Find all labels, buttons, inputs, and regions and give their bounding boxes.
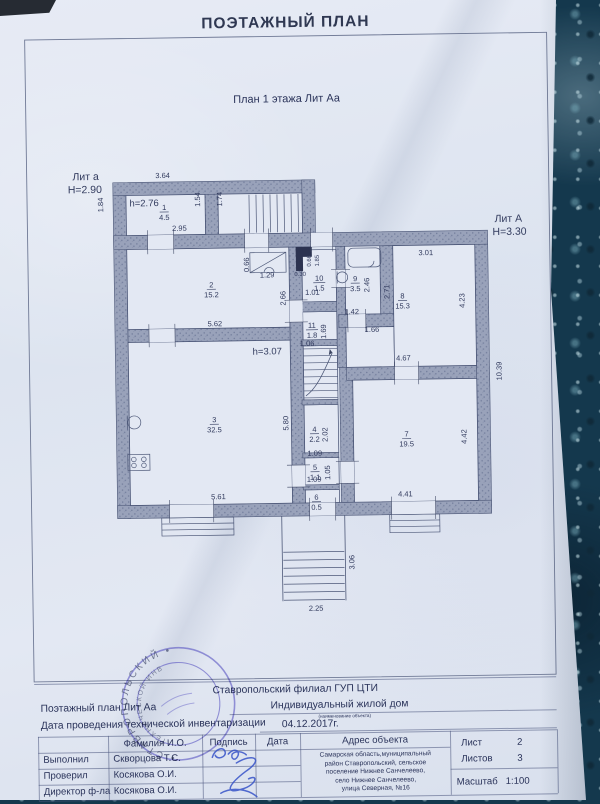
chimney-block: [296, 247, 303, 271]
dim-label: 2.25: [309, 604, 324, 613]
dim-label: 4.67: [396, 353, 411, 362]
washbasin-icon: [337, 272, 348, 283]
bath-icon: [348, 248, 381, 267]
dim-label: Лит а: [72, 171, 99, 183]
room-number: 5: [313, 463, 317, 472]
photo-of-floor-plan-document: { "title": "ПОЭТАЖНЫЙ ПЛАН", "subtitle":…: [0, 0, 600, 800]
room-area: 0.5: [311, 503, 322, 512]
dim-label: 1.42: [344, 307, 359, 316]
sheets-label: Листов: [461, 753, 492, 764]
room-area: 3.5: [350, 284, 361, 293]
entry-steps: [162, 514, 440, 536]
room-number: 7: [404, 429, 408, 438]
dim-label: 0.66: [307, 254, 313, 266]
dim-label: 1.85: [315, 254, 321, 266]
room-number: 6: [314, 493, 318, 502]
inner-walls: [296, 246, 340, 490]
dim-label: 1.09: [307, 475, 322, 484]
dim-label: Н=3.30: [492, 226, 526, 239]
room-area: 4.5: [159, 213, 170, 222]
dim-label: h=3.07: [253, 346, 282, 357]
row-role: Проверил: [43, 770, 87, 782]
dim-label: 2.02: [320, 427, 329, 442]
porch-stair: [249, 194, 299, 233]
col-header-address: Адрес объекта: [300, 734, 450, 747]
room-number: 9: [353, 274, 357, 283]
sheet-label: Лист: [461, 737, 482, 748]
sheets-value: 3: [517, 753, 523, 764]
dim-label: 1.69: [319, 324, 328, 339]
scale-value: 1:100: [506, 776, 530, 787]
dim-label: 3.01: [418, 248, 433, 257]
interior-stair: [303, 348, 338, 397]
room-area: 15.3: [395, 301, 410, 310]
dim-label: 4.23: [457, 293, 466, 308]
dim-label: 1.05: [323, 465, 332, 480]
inventory-date-value: 04.12.2017г.: [282, 718, 339, 730]
room-number: 3: [212, 415, 216, 424]
document-content: ПОЭТАЖНЫЙ ПЛАН План 1 этажа Лит Аа: [0, 0, 600, 804]
dim-label: 5.61: [211, 492, 226, 501]
room-area: 2.2: [309, 435, 320, 444]
room-number: 4: [312, 425, 316, 434]
dim-label: 1.66: [365, 325, 380, 334]
scale-label: Масштаб: [457, 776, 498, 788]
page-title: ПОЭТАЖНЫЙ ПЛАН: [24, 10, 546, 36]
dim-label: 4.42: [459, 429, 468, 444]
row-role: Директор ф-ла: [44, 786, 111, 798]
dim-label: 1.84: [96, 198, 105, 213]
dim-label: 10.39: [494, 362, 503, 381]
dim-label: 1.06: [300, 339, 315, 348]
room-area: 32.5: [207, 425, 222, 434]
sheet-value: 2: [517, 737, 523, 748]
dim-label: 5.62: [207, 319, 222, 328]
dim-label: 1.09: [307, 449, 322, 458]
plan-subtitle: План 1 этажа Лит Аа: [25, 89, 547, 109]
room-number: 11: [308, 321, 316, 330]
room-area: 1.1: [310, 473, 321, 482]
dim-label: 0.30: [294, 272, 306, 278]
object-type: Индивидуальный жилой дом: [234, 698, 444, 712]
dim-label: 2.66: [278, 291, 287, 306]
dim-label: Лит А: [494, 213, 522, 225]
room-number: 1: [162, 203, 166, 212]
walls: [113, 177, 492, 519]
drawing-frame: [25, 32, 556, 682]
row-role: Выполнил: [43, 754, 89, 766]
dim-label: 3.06: [347, 555, 356, 570]
outside-stair: [282, 515, 346, 601]
sink-icon: [128, 416, 141, 429]
dim-label: h=2.76: [129, 198, 158, 209]
dim-label: 1.29: [260, 270, 275, 279]
plan-labels: Лит аН=2.903.641.84h=2.762.951.541.74Лит…: [68, 165, 533, 617]
dim-label: 4.41: [398, 489, 413, 498]
dim-label: Н=2.90: [68, 184, 102, 197]
room-number: 10: [315, 274, 323, 283]
dim-label: 2.71: [382, 284, 391, 299]
rooms: [126, 190, 479, 505]
cupboard-icon: [250, 252, 286, 273]
room-area: 15.2: [204, 290, 219, 299]
dim-label: 2.95: [172, 224, 187, 233]
stove-icon: [128, 454, 150, 470]
dim-label: 5.80: [281, 416, 290, 431]
dim-label: 1.74: [215, 192, 224, 207]
room-area: 1.8: [307, 331, 318, 340]
fixtures: [125, 248, 384, 471]
chimney-block: [296, 247, 312, 257]
room-number: 8: [400, 291, 404, 300]
dim-label: 3.64: [155, 171, 170, 180]
room-number: 2: [209, 280, 213, 289]
wall-openings: [147, 226, 435, 523]
room-area: 19.5: [399, 439, 414, 448]
dim-label: 1.54: [193, 192, 202, 207]
dim-label: 0.66: [242, 257, 251, 272]
room-area: 1.5: [314, 284, 325, 293]
object-address: Самарская область,муниципальный район Ст…: [300, 750, 451, 795]
dim-label: 2.46: [362, 278, 371, 293]
dim-label: 1.01: [305, 288, 320, 297]
